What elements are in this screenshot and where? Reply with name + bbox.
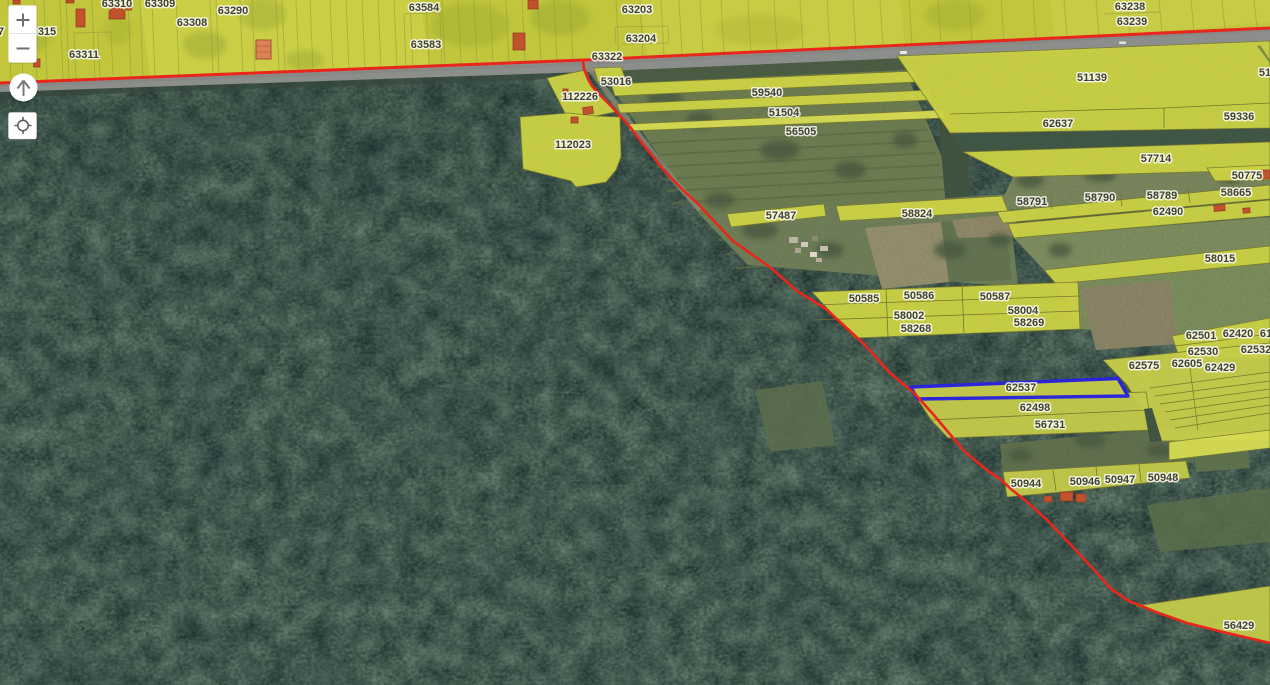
svg-text:50946: 50946 bbox=[1070, 476, 1101, 488]
svg-text:7: 7 bbox=[0, 26, 4, 38]
svg-text:51: 51 bbox=[1259, 67, 1270, 79]
svg-text:62420: 62420 bbox=[1223, 328, 1254, 340]
svg-text:63311: 63311 bbox=[69, 49, 99, 61]
svg-text:50586: 50586 bbox=[904, 290, 935, 302]
svg-text:58791: 58791 bbox=[1017, 196, 1048, 208]
svg-text:51139: 51139 bbox=[1077, 72, 1107, 84]
svg-text:63203: 63203 bbox=[622, 4, 653, 16]
svg-text:58824: 58824 bbox=[902, 208, 933, 220]
svg-text:63239: 63239 bbox=[1117, 16, 1148, 28]
svg-text:56429: 56429 bbox=[1224, 620, 1255, 632]
svg-text:63204: 63204 bbox=[626, 33, 657, 45]
svg-text:112226: 112226 bbox=[562, 91, 598, 103]
svg-text:62532: 62532 bbox=[1241, 344, 1270, 356]
svg-text:63584: 63584 bbox=[409, 2, 440, 14]
svg-text:51504: 51504 bbox=[769, 107, 800, 119]
svg-text:50775: 50775 bbox=[1232, 170, 1263, 182]
svg-text:62605: 62605 bbox=[1172, 358, 1203, 370]
svg-text:58665: 58665 bbox=[1221, 187, 1252, 199]
svg-text:63290: 63290 bbox=[218, 5, 249, 17]
svg-text:58268: 58268 bbox=[901, 323, 932, 335]
svg-text:58269: 58269 bbox=[1014, 317, 1045, 329]
svg-text:59540: 59540 bbox=[752, 87, 783, 99]
svg-text:50948: 50948 bbox=[1148, 472, 1179, 484]
svg-text:63308: 63308 bbox=[177, 17, 208, 29]
svg-text:53016: 53016 bbox=[601, 76, 632, 88]
svg-text:57487: 57487 bbox=[766, 210, 797, 222]
svg-text:62637: 62637 bbox=[1043, 118, 1074, 130]
svg-text:63238: 63238 bbox=[1115, 1, 1146, 13]
svg-text:58015: 58015 bbox=[1205, 253, 1236, 265]
svg-text:63310: 63310 bbox=[102, 0, 133, 10]
svg-text:58790: 58790 bbox=[1085, 192, 1116, 204]
svg-text:57714: 57714 bbox=[1141, 153, 1172, 165]
svg-text:50585: 50585 bbox=[849, 293, 880, 305]
svg-text:61: 61 bbox=[1260, 328, 1270, 340]
svg-text:62490: 62490 bbox=[1153, 206, 1184, 218]
svg-text:58004: 58004 bbox=[1008, 305, 1039, 317]
svg-text:59336: 59336 bbox=[1224, 111, 1255, 123]
svg-text:62498: 62498 bbox=[1020, 402, 1051, 414]
svg-text:50944: 50944 bbox=[1011, 478, 1042, 490]
svg-text:63583: 63583 bbox=[411, 39, 442, 51]
svg-text:315: 315 bbox=[38, 26, 56, 38]
svg-text:58002: 58002 bbox=[894, 310, 925, 322]
svg-text:63322: 63322 bbox=[592, 51, 623, 63]
svg-text:62429: 62429 bbox=[1205, 362, 1236, 374]
svg-text:63309: 63309 bbox=[145, 0, 176, 10]
svg-text:112023: 112023 bbox=[555, 139, 591, 151]
svg-text:56505: 56505 bbox=[786, 126, 817, 138]
svg-text:58789: 58789 bbox=[1147, 190, 1178, 202]
svg-text:62501: 62501 bbox=[1186, 330, 1217, 342]
svg-text:62530: 62530 bbox=[1188, 346, 1219, 358]
svg-text:50947: 50947 bbox=[1105, 474, 1136, 486]
svg-text:62537: 62537 bbox=[1006, 382, 1037, 394]
svg-text:62575: 62575 bbox=[1129, 360, 1160, 372]
svg-text:56731: 56731 bbox=[1035, 419, 1066, 431]
svg-text:50587: 50587 bbox=[980, 291, 1011, 303]
